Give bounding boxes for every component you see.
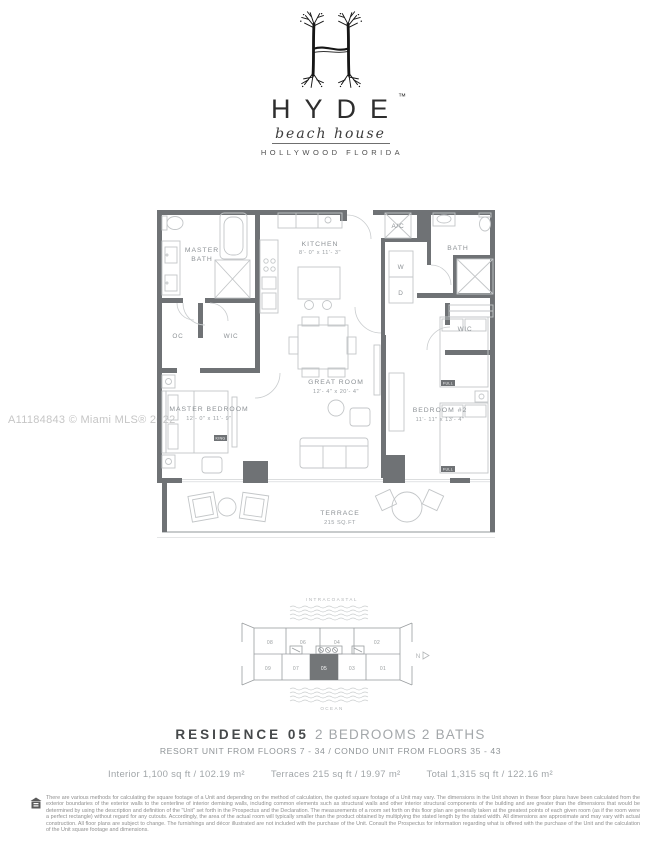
building-key-plan: INTRACOASTAL xyxy=(232,594,432,712)
bedroom2-furniture: FULL FULL xyxy=(389,317,488,473)
room-dims-bedroom2: 11'- 11" x 13'- 4" xyxy=(416,417,465,423)
kitchen-fixtures xyxy=(260,213,342,313)
water-waves-top xyxy=(290,606,368,620)
room-label-kitchen: KITCHEN xyxy=(302,241,339,248)
master-bedroom-furniture: KING xyxy=(162,375,237,473)
keyplan-ocean-label: OCEAN xyxy=(320,706,343,711)
room-label-bedroom2: BEDROOM #2 xyxy=(413,407,468,414)
room-label-wic2: WIC xyxy=(458,326,473,333)
room-label-master-bedroom: MASTER BEDROOM xyxy=(169,406,248,413)
floorplan-page: HYDE™ beach house HOLLYWOOD FLORIDA A111… xyxy=(0,0,661,850)
room-label-dryer: D xyxy=(398,290,403,297)
north-arrow-icon: N xyxy=(416,652,429,660)
room-label-oc: OC xyxy=(172,333,183,340)
brand-rule xyxy=(272,143,390,144)
stat-total: Total 1,315 sq ft / 122.16 m² xyxy=(427,769,553,780)
room-dims-great-room: 12'- 4" x 20'- 4" xyxy=(313,389,359,395)
keyplan-unit-05: 05 xyxy=(321,666,327,672)
room-label-master-bath-2: BATH xyxy=(191,256,213,263)
brand-location: HOLLYWOOD FLORIDA xyxy=(258,148,403,157)
brand-script: beach house xyxy=(275,126,386,142)
room-label-bath2: BATH xyxy=(447,245,469,252)
equal-housing-icon xyxy=(30,796,42,834)
keyplan-unit-04: 04 xyxy=(334,640,340,646)
disclaimer-text: There are various methods for calculatin… xyxy=(46,795,640,834)
room-label-wic-master: WIC xyxy=(224,333,239,340)
room-label-washer: W xyxy=(398,264,405,271)
water-waves-bottom xyxy=(290,688,368,702)
building-outline xyxy=(242,623,412,685)
room-dims-master-bedroom: 12'- 0" x 11'- 9" xyxy=(186,416,232,422)
residence-title: RESIDENCE 05 xyxy=(175,727,309,742)
keyplan-unit-08: 08 xyxy=(267,640,273,646)
room-label-master-bath-1: MASTER xyxy=(185,247,219,254)
room-dims-terrace: 215 SQ.FT xyxy=(324,520,356,526)
title-block: RESIDENCE 052 BEDROOMS 2 BATHS RESORT UN… xyxy=(0,727,661,780)
keyplan-unit-02: 02 xyxy=(374,640,380,646)
brand-name: HYDE™ xyxy=(259,94,402,125)
bath2-fixtures xyxy=(433,213,493,317)
brand-logo: HYDE™ beach house HOLLYWOOD FLORIDA xyxy=(0,10,661,157)
room-label-great-room: GREAT ROOM xyxy=(308,379,364,386)
terrace-furniture xyxy=(188,489,444,522)
disclaimer-block: There are various methods for calculatin… xyxy=(30,795,640,834)
keyplan-unit-06: 06 xyxy=(300,640,306,646)
floor-plan: KING FULL FULL xyxy=(150,205,500,540)
living-furniture xyxy=(300,345,380,468)
hyde-tree-logo-icon xyxy=(279,10,383,92)
bed-tag-full-2: FULL xyxy=(443,468,453,472)
room-label-terrace: TERRACE xyxy=(320,510,359,517)
stat-interior: Interior 1,100 sq ft / 102.19 m² xyxy=(108,769,245,780)
keyplan-unit-09: 09 xyxy=(265,666,271,672)
bed-tag-full-1: FULL xyxy=(443,382,453,386)
bed-tag-king: KING xyxy=(216,437,226,441)
dining-furniture xyxy=(289,317,356,377)
svg-text:N: N xyxy=(416,653,421,660)
area-stats: Interior 1,100 sq ft / 102.19 m² Terrace… xyxy=(0,769,661,780)
room-label-ac: A/C xyxy=(391,223,404,230)
stat-terraces: Terraces 215 sq ft / 19.97 m² xyxy=(271,769,401,780)
keyplan-intracoastal-label: INTRACOASTAL xyxy=(306,597,358,602)
floors-info: RESORT UNIT FROM FLOORS 7 - 34 / CONDO U… xyxy=(0,746,661,756)
keyplan-unit-01: 01 xyxy=(380,666,386,672)
keyplan-unit-07: 07 xyxy=(293,666,299,672)
room-dims-kitchen: 8'- 0" x 11'- 3" xyxy=(299,250,341,256)
trademark-symbol: ™ xyxy=(398,92,406,101)
beds-baths-subtitle: 2 BEDROOMS 2 BATHS xyxy=(315,727,486,742)
keyplan-unit-03: 03 xyxy=(349,666,355,672)
